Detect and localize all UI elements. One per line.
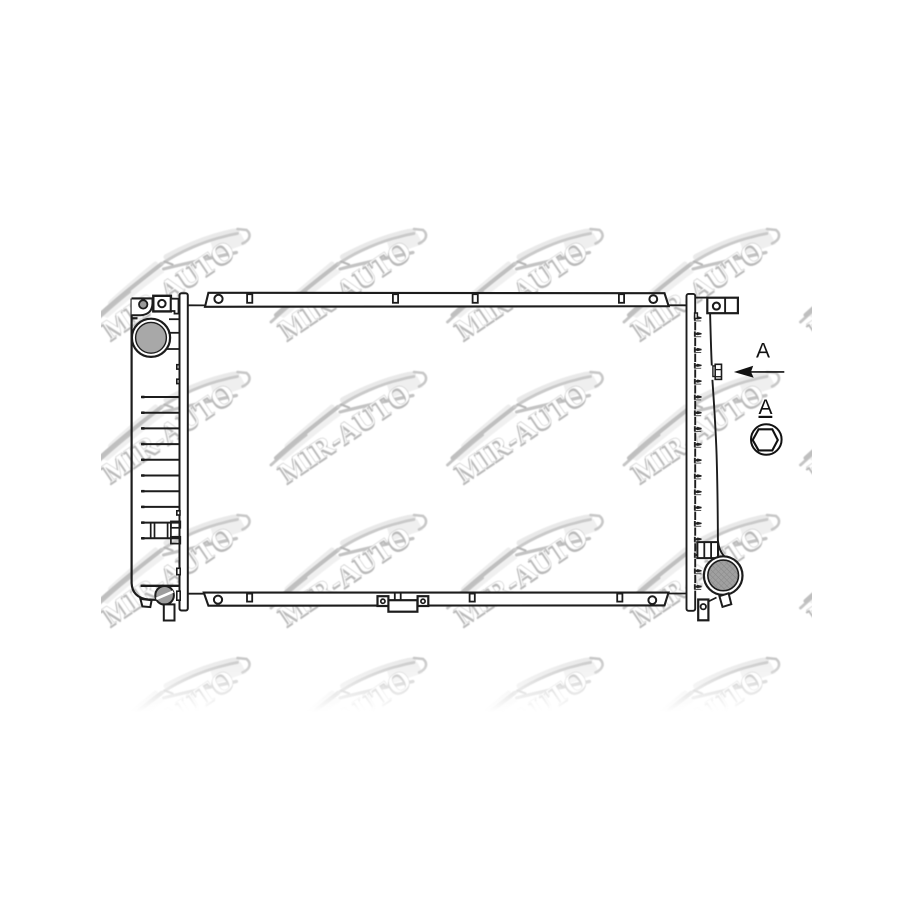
svg-text:A: A	[756, 339, 770, 362]
svg-text:A: A	[758, 396, 772, 419]
